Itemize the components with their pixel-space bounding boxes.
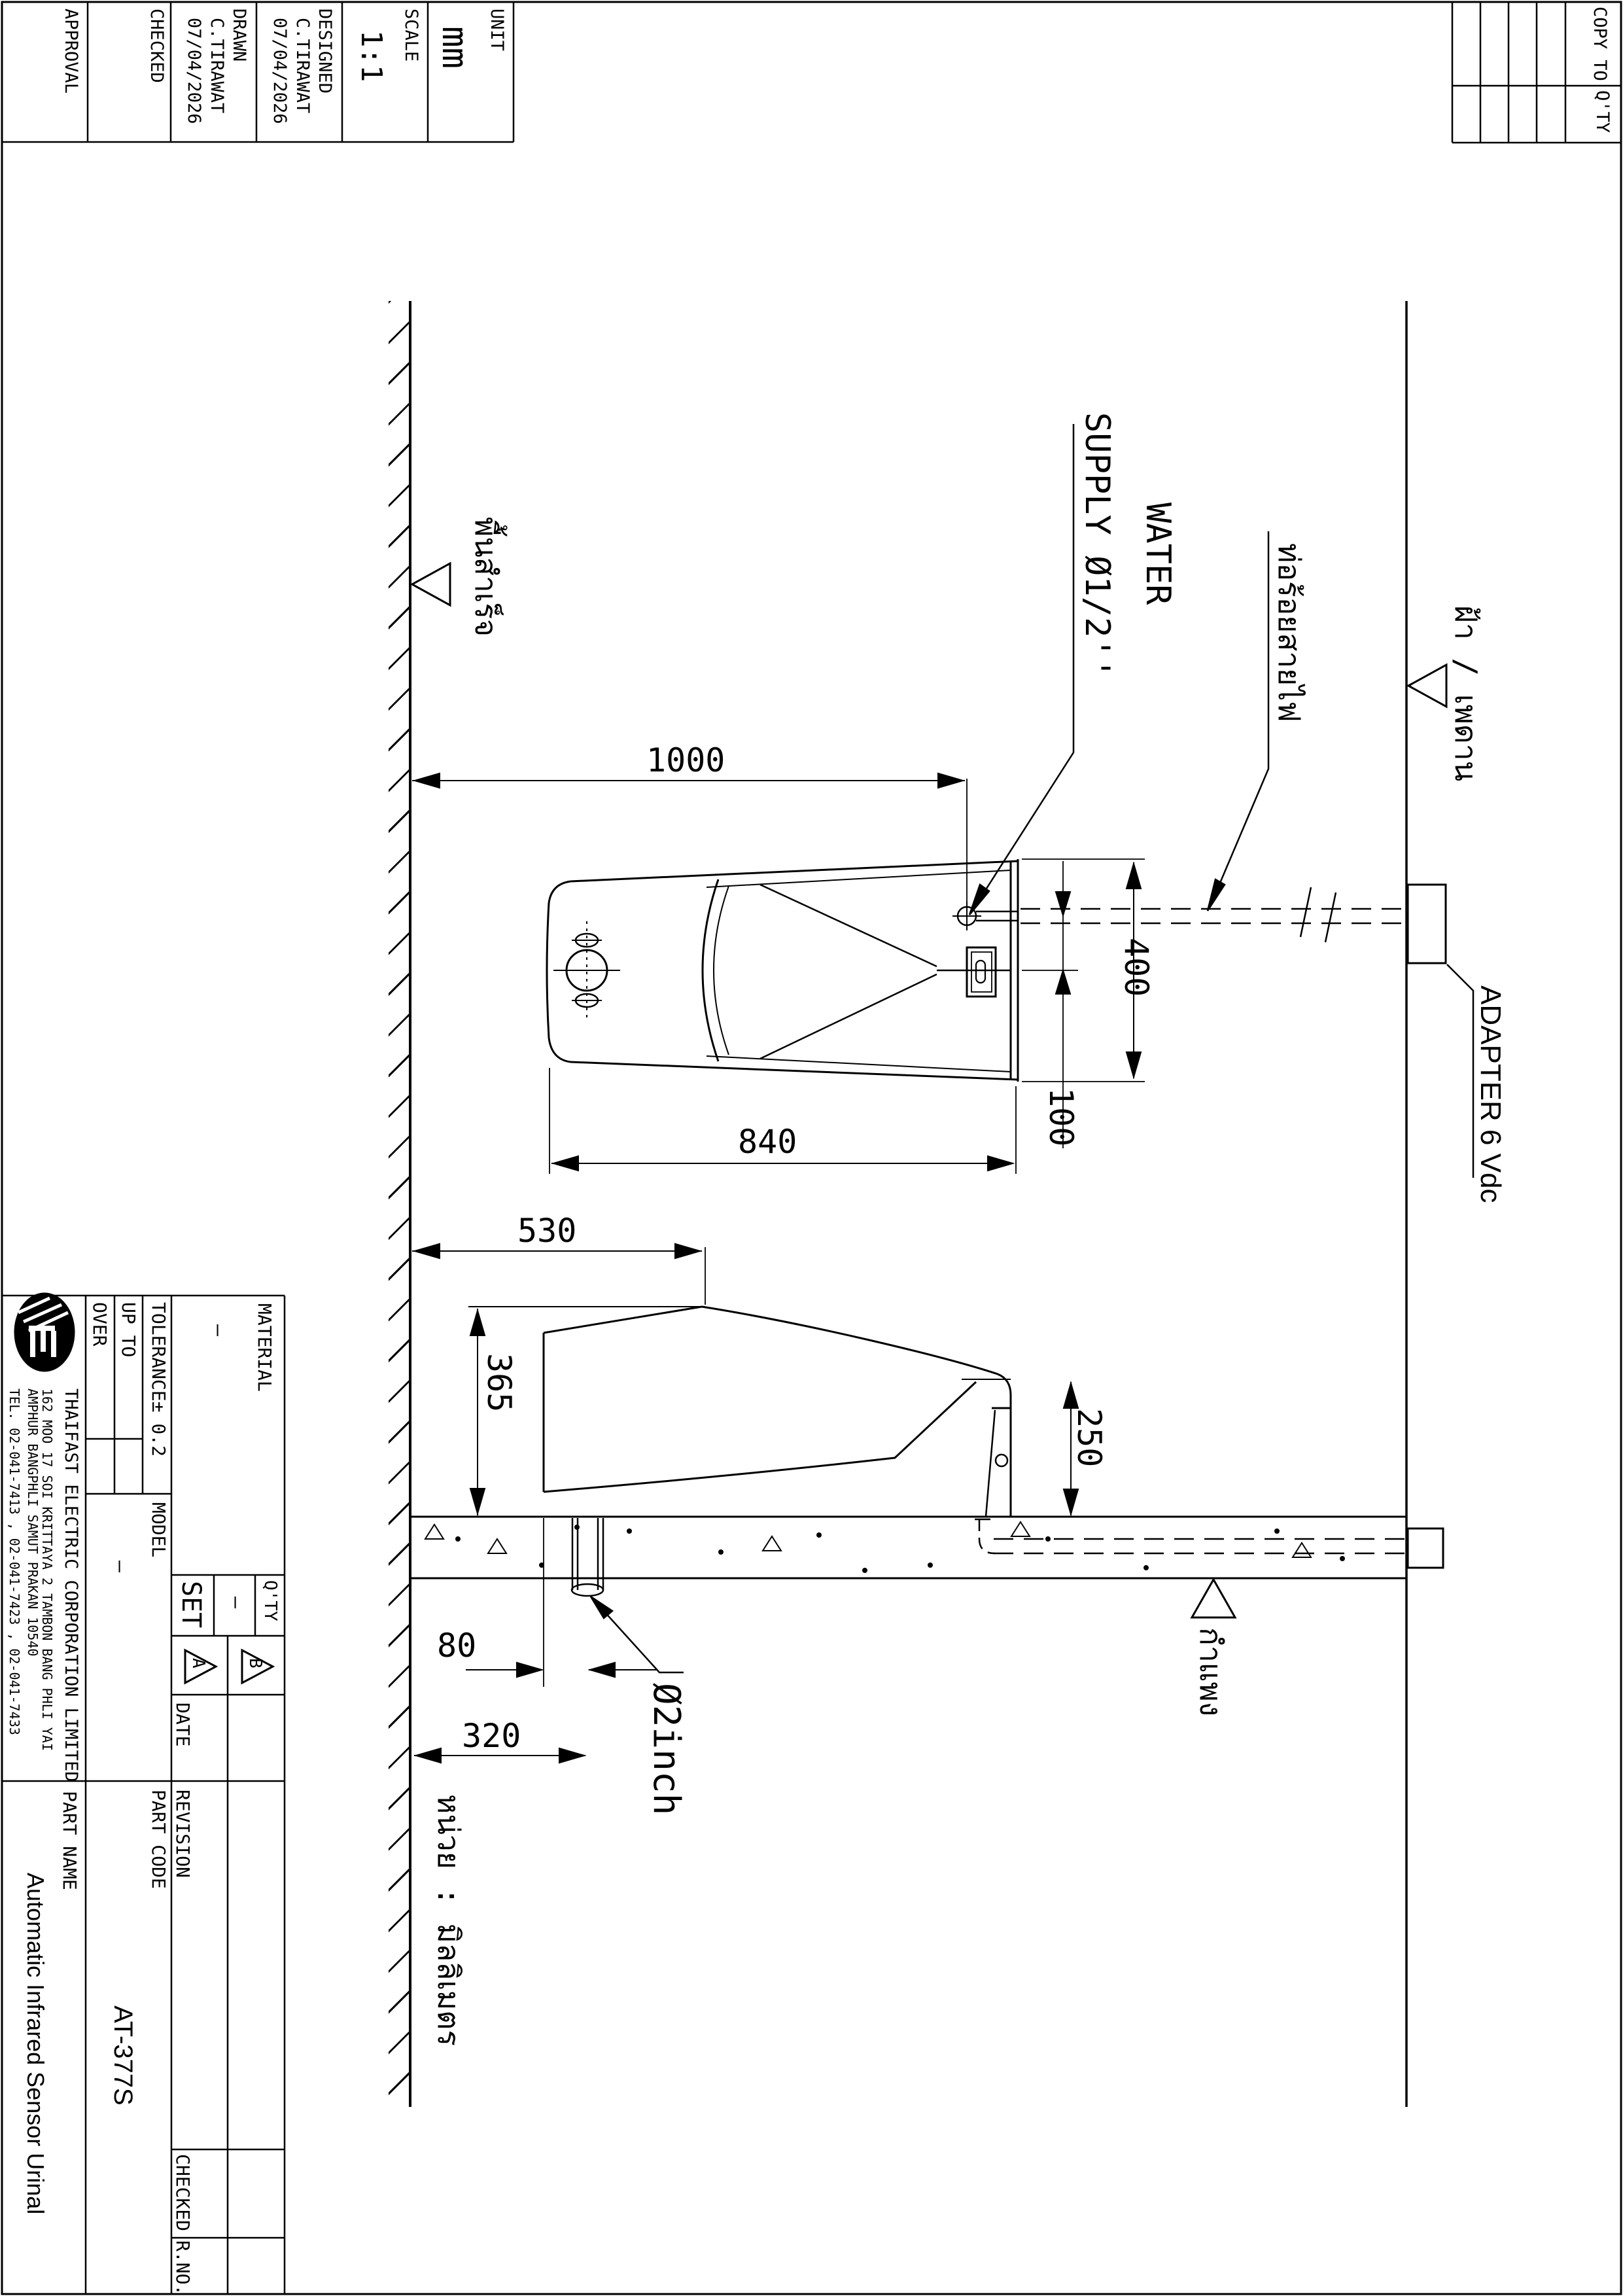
unit-label: UNIT [488, 9, 506, 51]
drawn-date: 07/04/2026 [185, 18, 203, 124]
set-label: SET [178, 1581, 204, 1628]
company-address-2: AMPHUR BANGPHLI SAMUT PRAKAN 10540 [26, 1388, 39, 1656]
adapter-label: ADAPTER 6 Vdc [1476, 985, 1505, 1203]
drain-size-label: Ø2inch [648, 1683, 684, 1815]
company-address-1: 162 MOO 17 SOI KRITTAYA 2 TAMBON BANG PH… [41, 1388, 54, 1751]
concrete-aggregate [425, 1522, 1344, 1572]
dimension-lines [412, 773, 1145, 1763]
page-border [2, 2, 1621, 2294]
dim-400: 400 [1120, 938, 1153, 997]
dim-250: 250 [1073, 1408, 1106, 1467]
company-name: THAIFAST ELECTRIC CORPORATION LIMITED [62, 1388, 80, 1782]
thai-wall-label: กำแพง [1196, 1627, 1226, 1716]
drawn-label: DRAWN [230, 9, 248, 62]
water-supply-label-line1: WATER [1141, 503, 1175, 605]
scale-label: SCALE [402, 9, 420, 62]
copy-to-label: COPY TO [1591, 7, 1609, 81]
dim-100: 100 [1045, 1087, 1077, 1146]
part-code-value: AT-377S [110, 2005, 136, 2106]
model-label: MODEL [149, 1502, 167, 1557]
part-code-label: PART CODE [149, 1790, 167, 1889]
model-value: — [110, 1561, 130, 1572]
qty-label: Q'TY [262, 1580, 279, 1621]
ceiling-datum-triangle-icon [1408, 665, 1446, 707]
material-label: MATERIAL [255, 1303, 273, 1392]
drawing-sheet: APPROVAL CHECKED DRAWN C.TIRAWAT 07/04/2… [0, 0, 1623, 2296]
designed-name: C.TIRAWAT [294, 18, 311, 113]
over-label: OVER [90, 1302, 109, 1346]
unit-value: mm [437, 26, 472, 69]
thai-unit-note: หน่วย : มิลลิเมตร [434, 1794, 464, 2046]
approval-label: APPROVAL [62, 9, 80, 94]
qty-header-label: Q'TY [1594, 90, 1611, 133]
company-address-3: TEL. 02-041-7413 , 02-041-7423 , 02-041-… [8, 1388, 21, 1735]
dim-840: 840 [738, 1125, 797, 1158]
thai-floor-label: พื้นสำเร็จ [471, 517, 501, 637]
rno-label: R.NO. [173, 2240, 192, 2295]
urinal-front-view [547, 859, 1018, 1082]
dim-320: 320 [462, 1720, 521, 1752]
urinal-side-view [544, 1307, 1011, 1517]
part-name-label: PART NAME [60, 1791, 79, 1890]
tolerance-label: TOLERANCE± 0.2 [149, 1302, 167, 1457]
designed-label: DESIGNED [316, 9, 334, 94]
drawn-name: C.TIRAWAT [208, 18, 226, 113]
thai-conduit-label: ท่อร้อยสายไฟ [1274, 543, 1304, 722]
dim-530: 530 [517, 1214, 576, 1247]
drawing-linework [0, 0, 1623, 2296]
dim-1000: 1000 [646, 744, 725, 777]
floor-hatching [389, 301, 410, 2107]
thai-ceiling-label: ฝ้า / เพดาน [1451, 605, 1481, 781]
up-to-label: UP TO [119, 1302, 137, 1357]
checked-label: CHECKED [148, 9, 166, 83]
adapter-box-icon [1408, 885, 1446, 963]
revision-b-marker: B [247, 1658, 264, 1669]
designed-date: 07/04/2026 [271, 18, 288, 124]
material-value: — [208, 1324, 228, 1336]
revision-label: REVISION [173, 1790, 192, 1878]
set-value: — [226, 1597, 245, 1608]
dim-365: 365 [483, 1353, 515, 1412]
revision-a-marker: A [190, 1658, 207, 1669]
wall-datum-triangle-icon [1192, 1580, 1235, 1617]
leader-lines [591, 424, 1268, 1672]
floor-datum-triangle-icon [412, 563, 450, 605]
part-name-value: Automatic Infrared Sensor Urinal [24, 1873, 47, 2214]
water-supply-label-line2: SUPPLY Ø1/2'' [1080, 412, 1114, 679]
scale-value: 1:1 [357, 30, 385, 82]
piping [572, 885, 1473, 1596]
date-label: DATE [173, 1703, 192, 1746]
dim-80: 80 [437, 1629, 476, 1662]
company-logo-icon [14, 1293, 75, 1371]
checked-rno-label: CHECKED [173, 2154, 192, 2231]
